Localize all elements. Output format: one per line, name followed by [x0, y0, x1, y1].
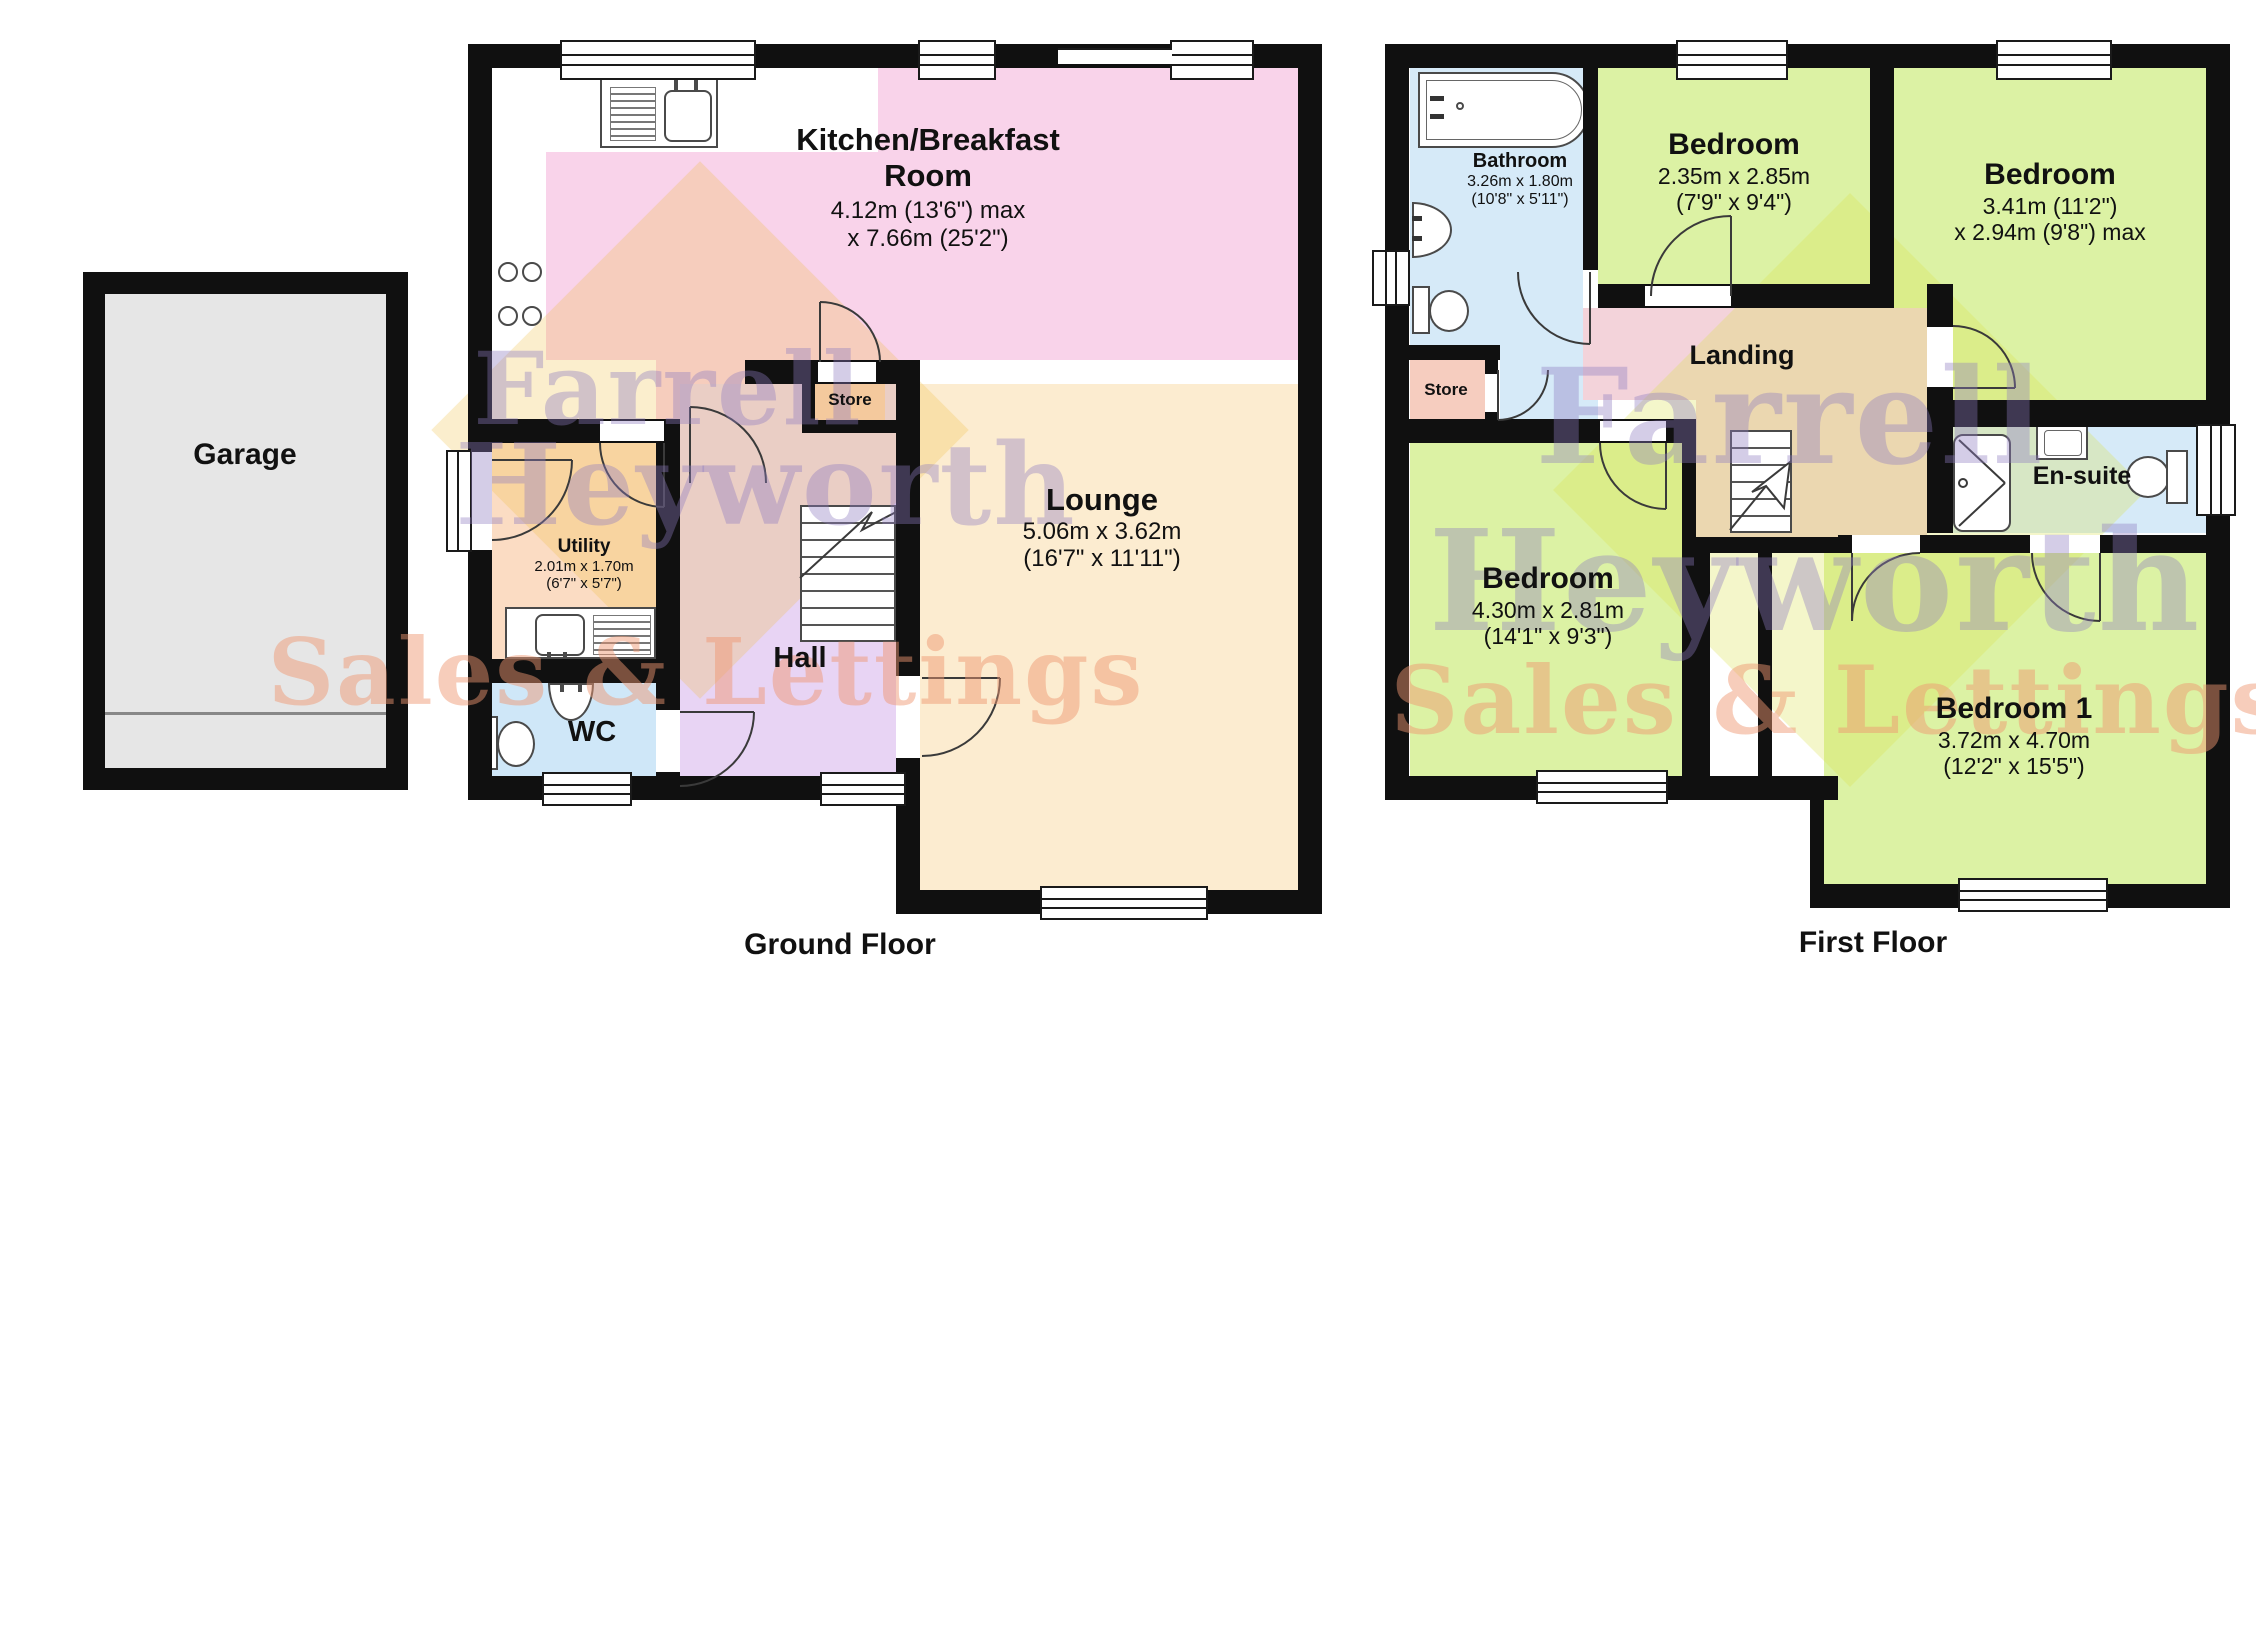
hall-label: Hall: [773, 642, 826, 675]
bedroom4-label: Bedroom 4.30m x 2.81m (14'1" x 9'3"): [1472, 562, 1624, 649]
watermark-ground-line3: Sales & Lettings: [268, 618, 1145, 726]
ground-floor-caption: Ground Floor: [744, 928, 936, 962]
floorplan-canvas: Farrell Heyworth Sales & Lettings Farrel…: [0, 0, 2256, 1640]
watermark-first-line3: Sales & Lettings: [1391, 646, 2256, 756]
utility-label: Utility 2.01m x 1.70m (6'7" x 5'7"): [534, 536, 633, 592]
garage-label: Garage: [193, 438, 296, 473]
kitchen-label: Kitchen/Breakfast Room 4.12m (13'6") max…: [796, 122, 1060, 252]
door-arcs-layer: [0, 0, 2256, 1640]
lounge-label: Lounge 5.06m x 3.62m (16'7" x 11'11"): [1023, 482, 1182, 573]
bedroom3-label: Bedroom 3.41m (11'2") x 2.94m (9'8") max: [1954, 158, 2146, 245]
watermark-ground-line2: Heyworth: [455, 420, 1076, 551]
first-floor-caption: First Floor: [1799, 926, 1947, 960]
landing-label: Landing: [1690, 340, 1795, 371]
wc-label: WC: [568, 716, 616, 749]
bedroom2-label: Bedroom 2.35m x 2.85m (7'9" x 9'4"): [1658, 128, 1810, 215]
store-ground-label: Store: [828, 390, 871, 410]
ensuite-label: En-suite: [2033, 462, 2132, 491]
store-first-label: Store: [1424, 380, 1467, 400]
bedroom1-label: Bedroom 1 3.72m x 4.70m (12'2" x 15'5"): [1936, 692, 2093, 779]
bathroom-label: Bathroom 3.26m x 1.80m (10'8" x 5'11"): [1467, 150, 1573, 210]
